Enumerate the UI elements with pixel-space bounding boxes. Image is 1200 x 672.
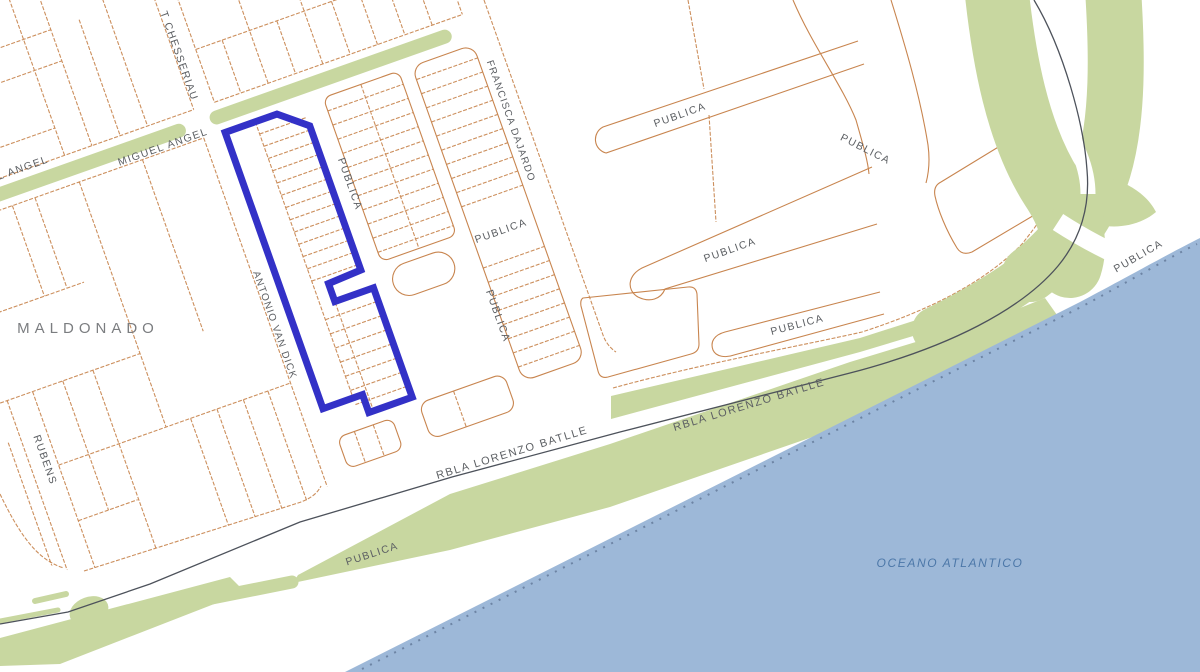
street-publica-1-outline <box>595 41 864 153</box>
median-miguel-angel-east <box>208 28 454 127</box>
street-label-publica-5: PUBLICA <box>473 216 529 246</box>
street-label-publica-4: PUBLICA <box>769 312 825 338</box>
parcel-lots-south2 <box>454 391 467 427</box>
region-label-maldonado: MALDONADO <box>17 320 159 337</box>
street-label-publica-6: PUBLICA <box>483 288 513 344</box>
block-divider-north <box>688 0 704 89</box>
street-publica-3-outline <box>630 167 877 300</box>
parcel-block-south1 <box>337 418 403 468</box>
water-label-oceano-atlantico: OCEANO ATLANTICO <box>877 556 1024 570</box>
block-center-south <box>581 287 699 378</box>
street-label-publica-3: PUBLICA <box>702 235 758 265</box>
street-label-rubens: RUBENS <box>30 433 59 486</box>
street-francisca-dajardo-east-edge <box>484 0 616 352</box>
street-label-publica-2: PUBLICA <box>838 132 892 168</box>
street-label-publica-1: PUBLICA <box>652 100 708 130</box>
map-svg[interactable]: MIGUEL ANGEL L ANGEL T CHESSERIAU FRANCI… <box>0 0 1200 672</box>
curve-road-east <box>891 0 929 183</box>
block-divider-mid <box>709 115 716 222</box>
street-label-t-chesseriau: T CHESSERIAU <box>157 10 200 103</box>
green-tongue <box>1102 178 1156 226</box>
map-canvas[interactable]: MIGUEL ANGEL L ANGEL T CHESSERIAU FRANCI… <box>0 0 1200 672</box>
